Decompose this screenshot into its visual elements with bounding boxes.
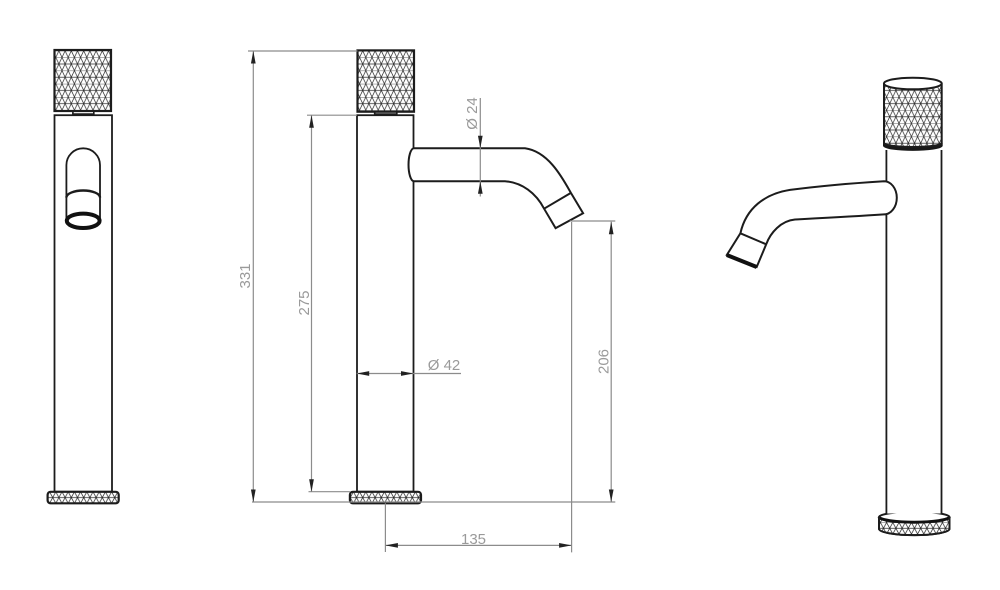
svg-text:135: 135	[461, 531, 486, 548]
svg-text:206: 206	[596, 349, 613, 374]
svg-text:275: 275	[296, 290, 313, 315]
svg-text:Ø 24: Ø 24	[464, 97, 481, 130]
svg-text:331: 331	[237, 263, 254, 288]
svg-text:Ø 42: Ø 42	[428, 357, 461, 374]
